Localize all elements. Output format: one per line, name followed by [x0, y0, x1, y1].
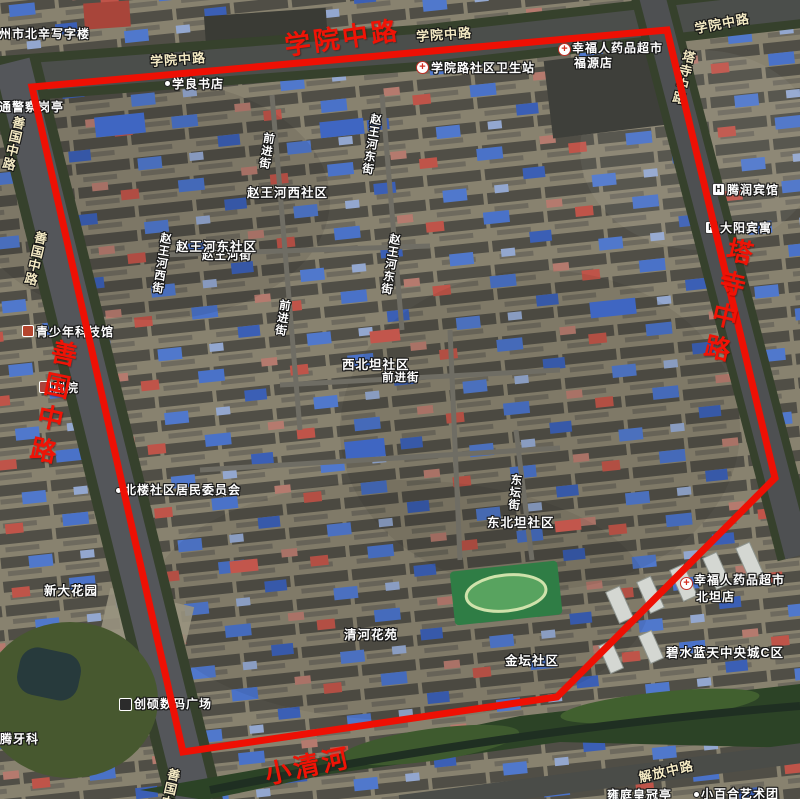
community-label-zhaowanghe-west: 赵王河西社区	[247, 182, 328, 201]
poi-label-police-kiosk: 交通警察岗亭	[0, 98, 64, 115]
poi-dot-icon-3	[694, 792, 699, 797]
community-label-dongbeitan: 东北坦社区	[487, 512, 555, 531]
museum-icon	[22, 325, 34, 337]
digital-plaza-icon	[119, 698, 132, 711]
satellite-map-canvas[interactable]: 滕州市北辛写字楼 学院中路 学院中路 学院中路 善国中路 善国中路 塔寺中路 解…	[0, 0, 800, 799]
satellite-imagery	[0, 0, 800, 799]
poi-label-beilou-committee: 北楼社区居民委员会	[124, 481, 241, 498]
poi-label-dayang-inn: 大阳宾寓	[720, 219, 772, 236]
street-label-dongtan: 东坛街	[505, 473, 524, 512]
road-label-xueyuan-2: 学院中路	[415, 22, 472, 45]
poi-label-bookstore: 学良书店	[172, 75, 224, 92]
pharmacy-cross-icon-1	[558, 43, 571, 56]
community-label-zhaowanghe-east: 赵王河东社区	[176, 236, 257, 255]
poi-label-pharmacy-fuyuan-branch: 福源店	[574, 54, 613, 71]
poi-dot-icon-2	[116, 488, 121, 493]
poi-label-yongting: 雍庭皇冠亭	[607, 786, 672, 799]
community-label-jintan: 金坛社区	[505, 650, 559, 669]
poi-label-pharmacy-beitan-branch: 北坦店	[696, 588, 735, 605]
poi-dot-icon	[165, 81, 170, 86]
community-label-bishui-lantian: 碧水蓝天中央城C区	[666, 642, 784, 661]
road-label-xueyuan-1: 学院中路	[149, 47, 206, 70]
hotel-icon-2	[705, 221, 718, 234]
poi-label-tengrun-hotel: 腾润宾馆	[727, 181, 779, 198]
poi-label-pharmacy-beitan: 幸福人药品超市	[694, 571, 785, 588]
hotel-icon-1	[712, 183, 725, 196]
community-label-xinda-garden: 新大花园	[44, 580, 98, 599]
community-label-xibeitan: 西北坦社区	[342, 354, 410, 373]
poi-label-office-building: 滕州市北辛写字楼	[0, 25, 90, 42]
clinic-cross-icon	[416, 61, 429, 74]
community-label-qinghe-garden: 清河花苑	[344, 624, 398, 643]
poi-label-digital-plaza: 创硕数码广场	[134, 695, 212, 712]
poi-label-health-station: 学院路社区卫生站	[431, 59, 535, 76]
poi-label-art-troupe: 小百合艺术团	[701, 785, 779, 799]
poi-label-dental: 腾牙科	[0, 730, 39, 747]
pharmacy-cross-icon-2	[680, 577, 693, 590]
